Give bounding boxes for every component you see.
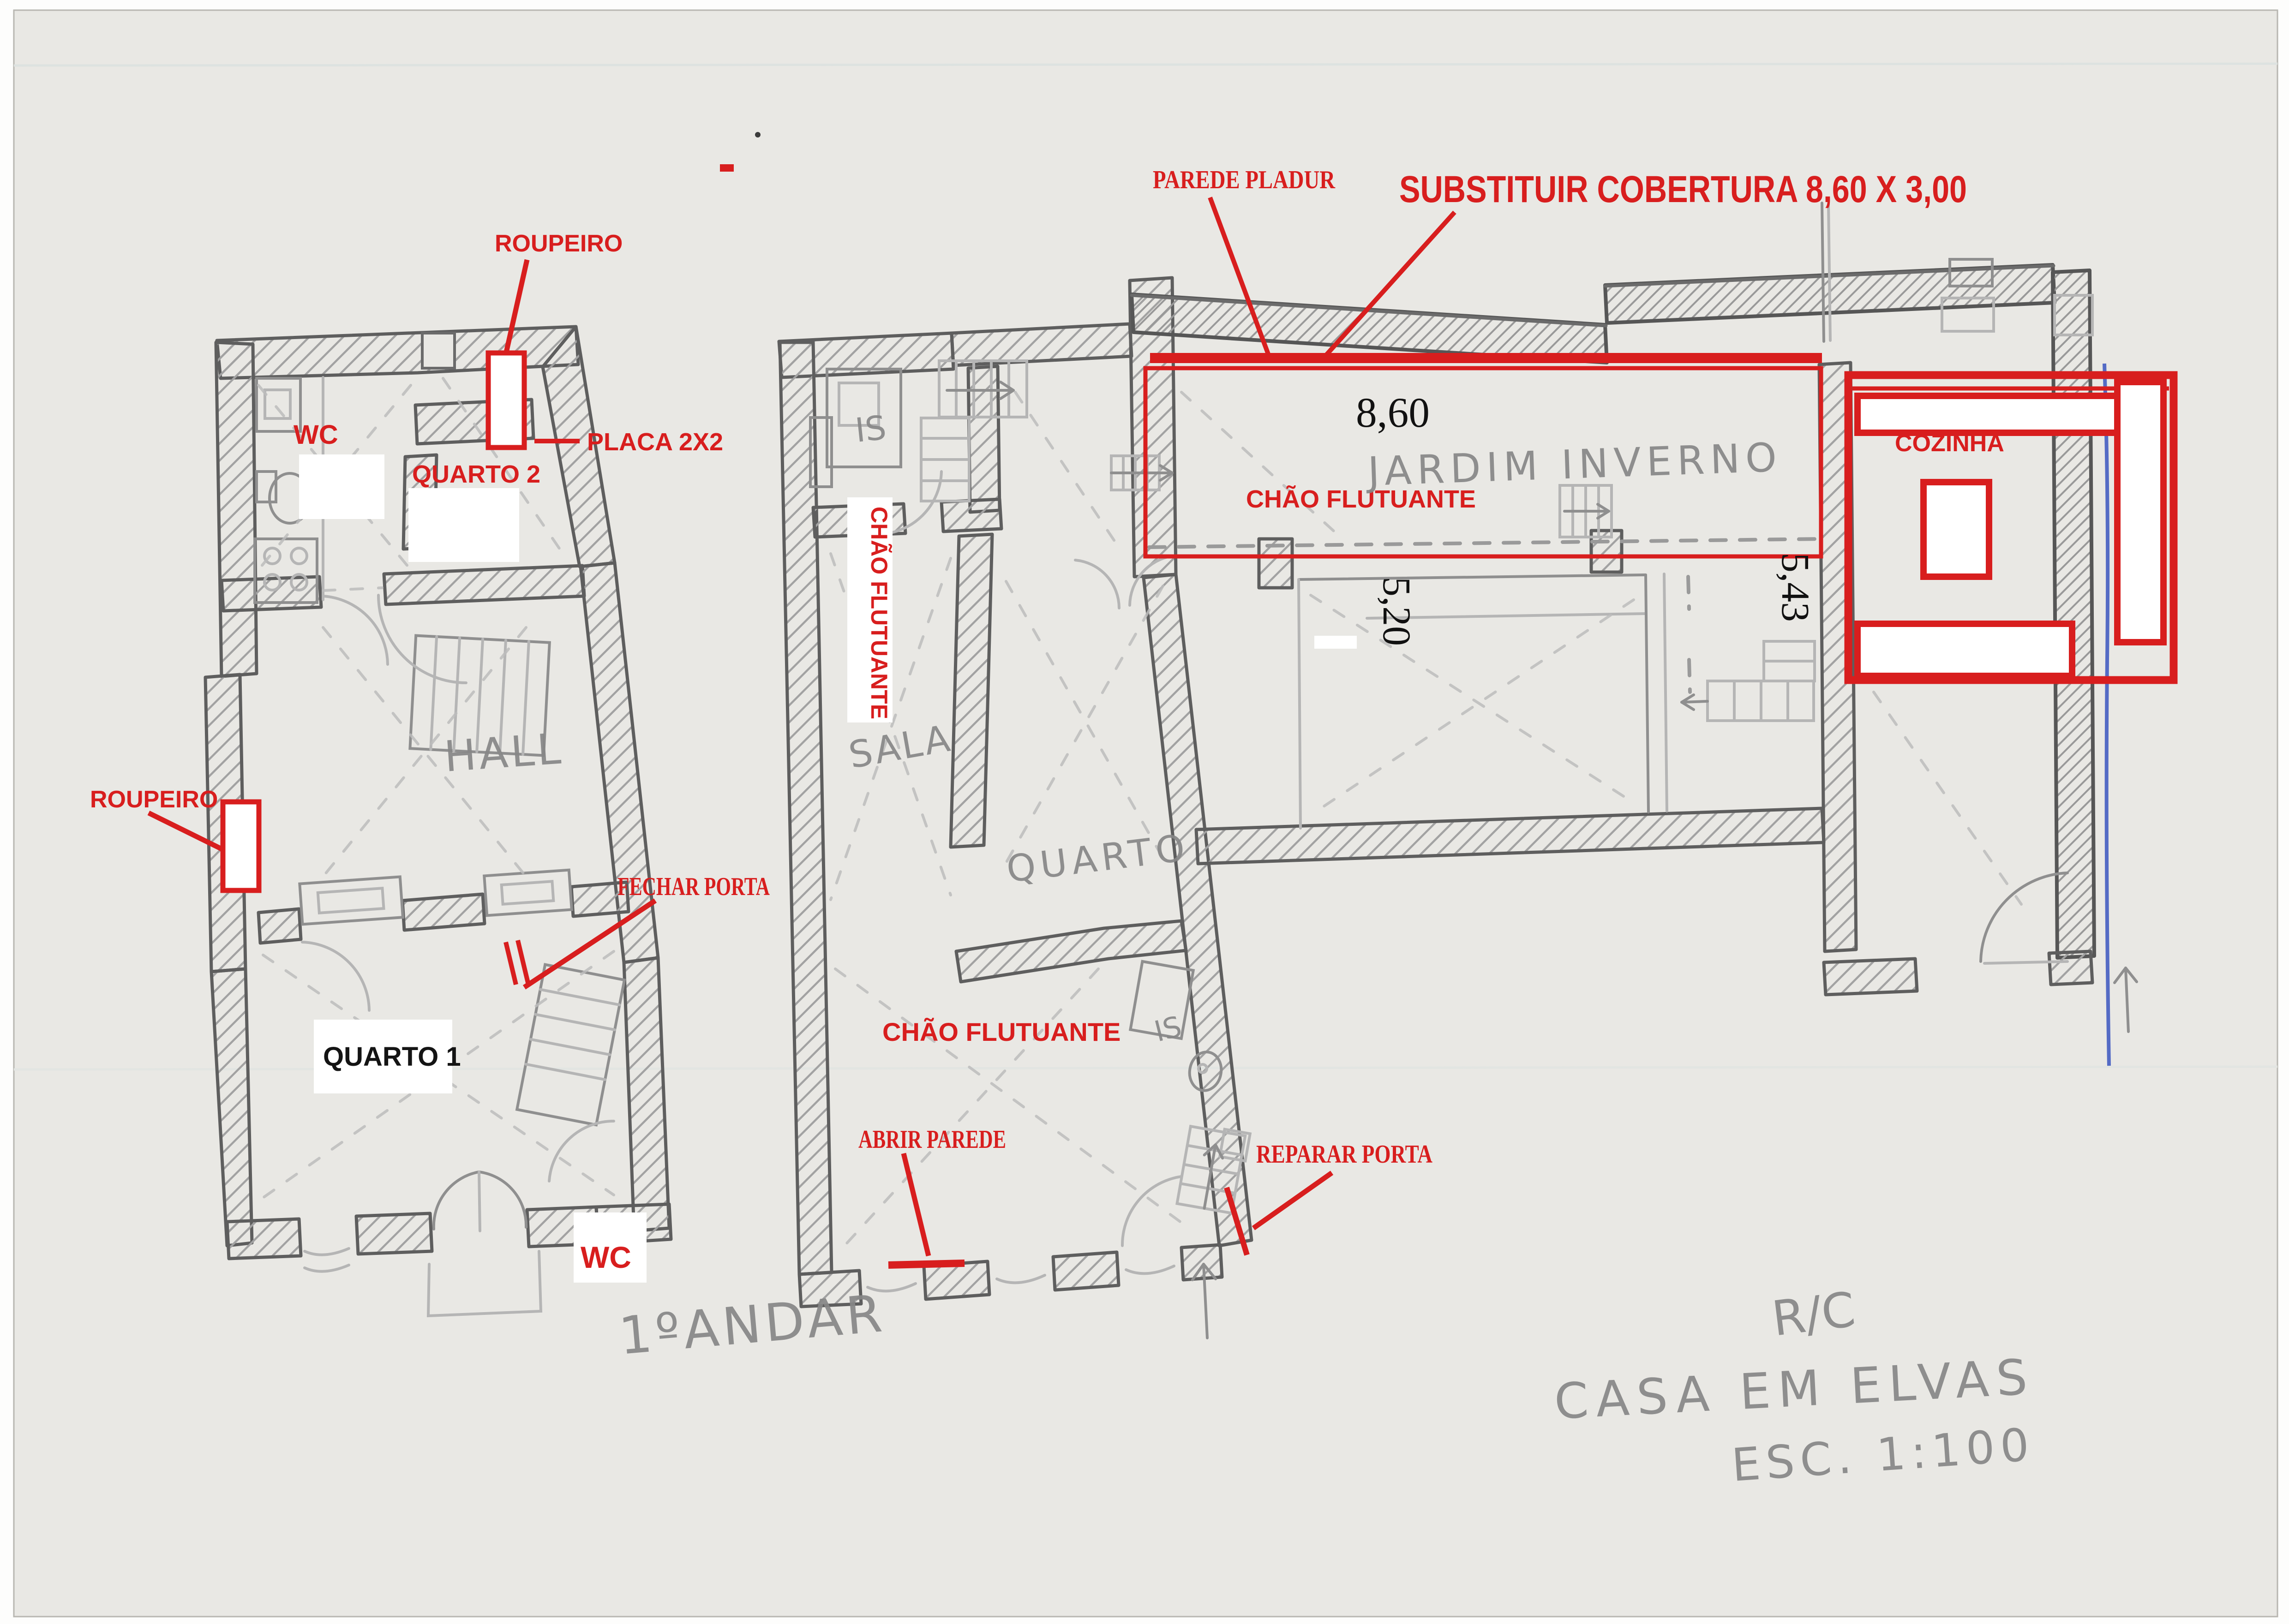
flue-line xyxy=(1822,203,1824,341)
label-substituir-cobertura: SUBSTITUIR COBERTURA 8,60 X 3,00 xyxy=(1399,168,1967,210)
label-wc-top: WC xyxy=(294,420,338,450)
label-parede-pladur: PAREDE PLADUR xyxy=(1153,166,1335,194)
scanned-floor-plan-page: ROUPEIRO ROUPEIRO WC QUARTO 2 PLACA 2X2 … xyxy=(0,0,2289,1624)
cozinha-counter-top xyxy=(1858,396,2121,433)
label-chao-flutuante-vertical: CHÃO FLUTUANTE xyxy=(866,507,892,719)
label-reparar-porta: REPARAR PORTA xyxy=(1256,1140,1432,1169)
label-hall: HALL xyxy=(443,724,565,782)
label-quarto2: QUARTO 2 xyxy=(412,460,540,488)
cozinha-counter-bottom xyxy=(1858,624,2072,676)
label-rc: R/C xyxy=(1769,1281,1858,1347)
floor-plan-canvas: ROUPEIRO ROUPEIRO WC QUARTO 2 PLACA 2X2 … xyxy=(0,0,2289,1624)
cozinha-counter-right xyxy=(2117,382,2163,642)
label-placa: PLACA 2X2 xyxy=(587,428,723,456)
label-roupeiro-left: ROUPEIRO xyxy=(90,786,218,813)
label-chao-flutuante-mid: CHÃO FLUTUANTE xyxy=(882,1017,1121,1046)
label-is-top: IS xyxy=(853,408,888,450)
ink-speck xyxy=(755,132,761,137)
label-quarto1: QUARTO 1 xyxy=(323,1042,461,1072)
window-opening xyxy=(422,333,455,368)
stray-red-dash xyxy=(720,164,734,172)
label-abrir-parede: ABRIR PAREDE xyxy=(858,1125,1006,1154)
label-fechar-porta: FECHAR PORTA xyxy=(617,872,770,901)
dim-5-43: 5,43 xyxy=(1774,553,1818,622)
roupeiro-box-top xyxy=(488,353,524,448)
roupeiro-box-left xyxy=(223,802,259,890)
dim-8-60: 8,60 xyxy=(1356,389,1430,436)
dim-5-20: 5,20 xyxy=(1375,577,1419,646)
abrir-parede-marker xyxy=(888,1263,965,1265)
cozinha-island xyxy=(1923,482,1989,577)
label-roupeiro-top: ROUPEIRO xyxy=(495,230,623,257)
label-cozinha: COZINHA xyxy=(1895,430,2004,457)
label-wc-bottom: WC xyxy=(581,1240,631,1274)
